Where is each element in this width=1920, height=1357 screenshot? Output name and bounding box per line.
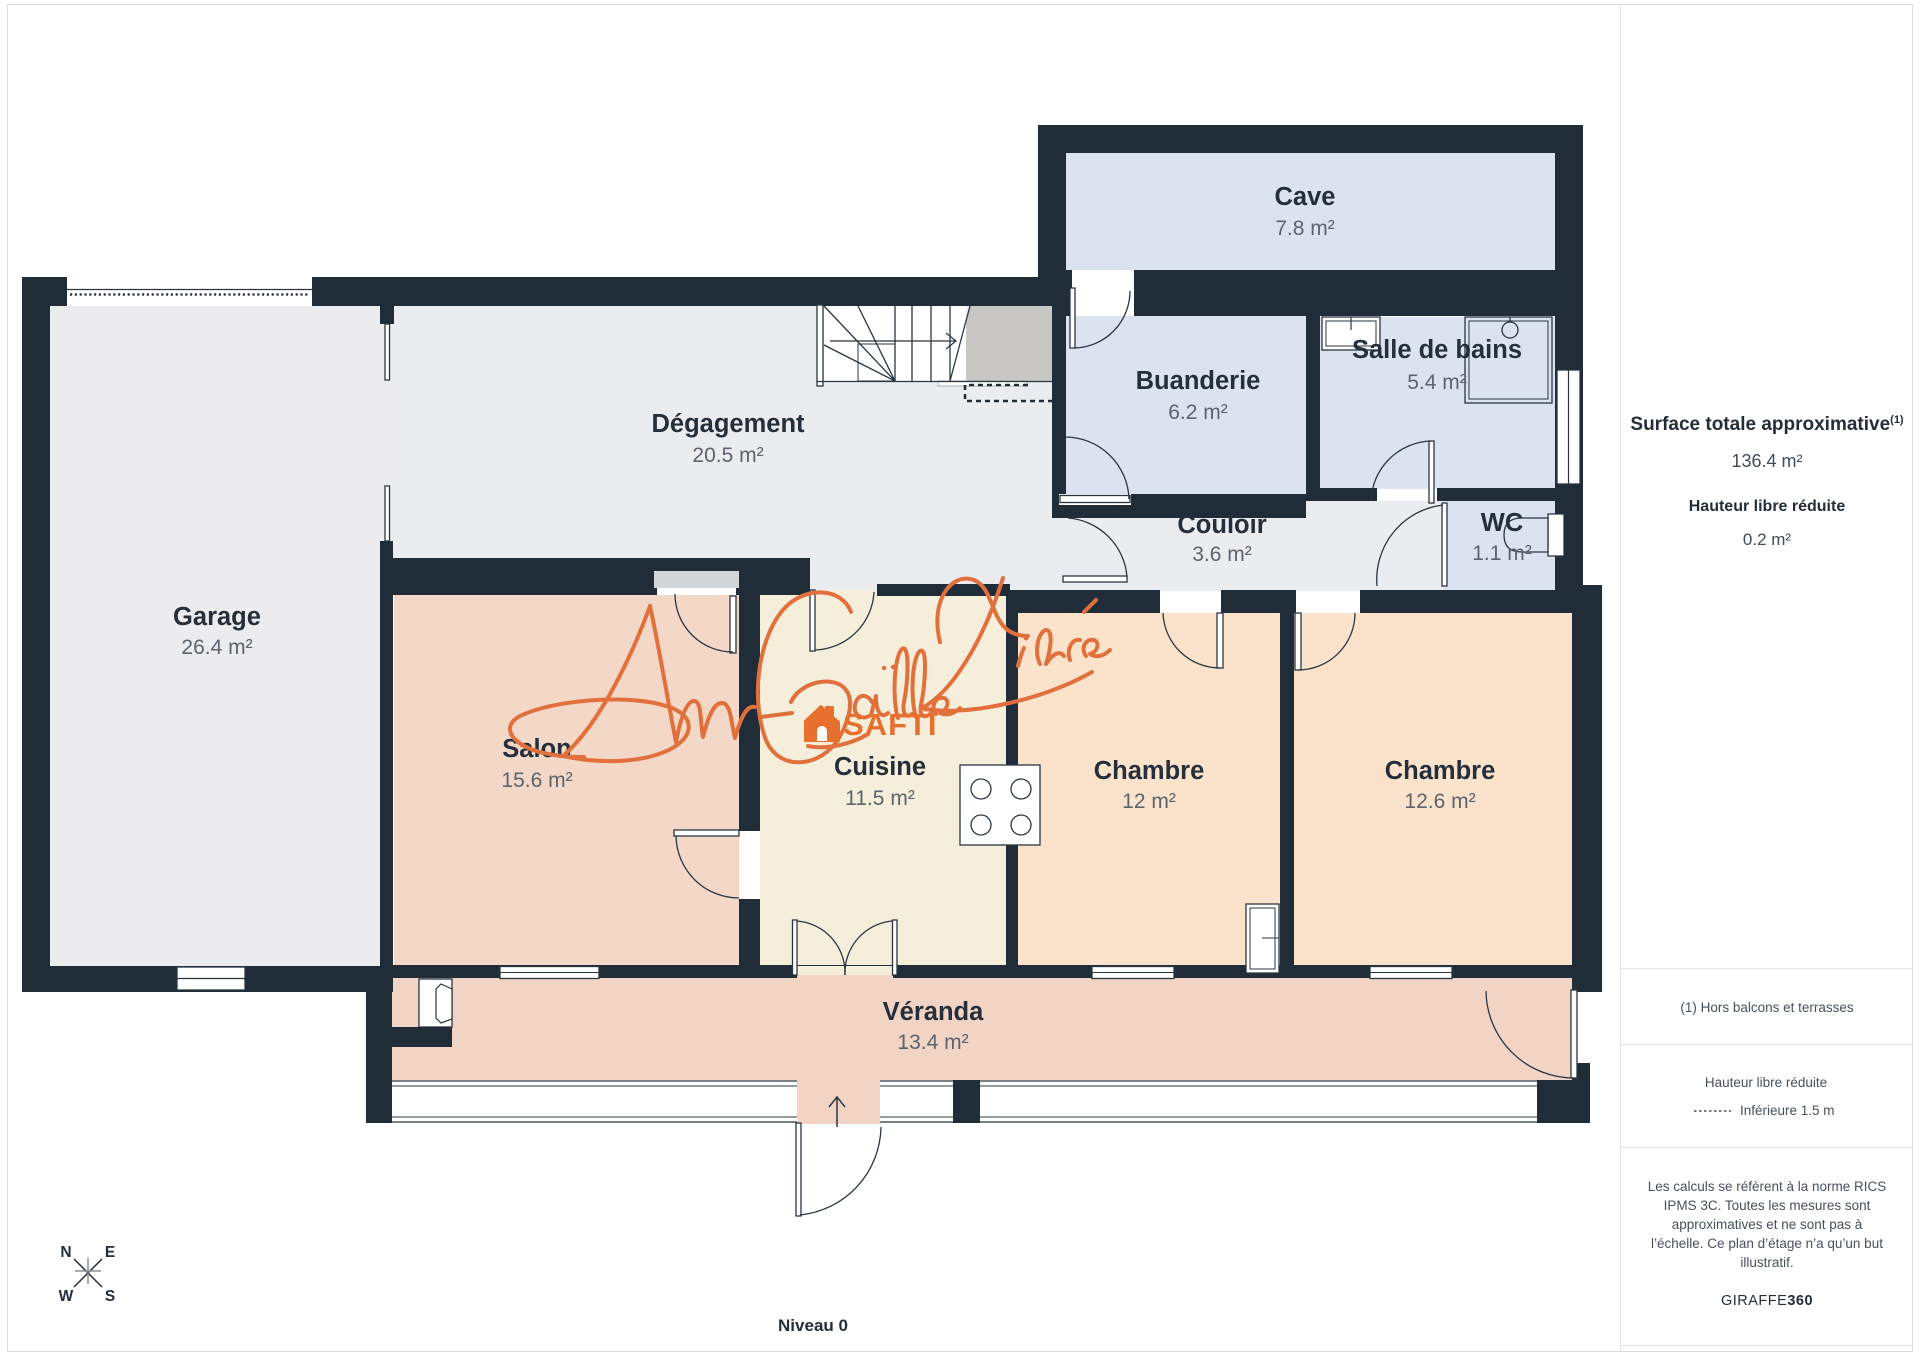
svg-text:Dégagement: Dégagement xyxy=(651,410,805,438)
svg-text:Cave: Cave xyxy=(1275,183,1336,211)
svg-text:Les calculs se réfèrent à la n: Les calculs se réfèrent à la norme RICS xyxy=(1648,1179,1887,1194)
svg-text:Véranda: Véranda xyxy=(883,998,984,1026)
svg-text:l’échelle. Ce plan d’étage n’a: l’échelle. Ce plan d’étage n’a qu’un but xyxy=(1651,1236,1883,1251)
svg-text:Buanderie: Buanderie xyxy=(1136,367,1261,395)
svg-text:7.8 m²: 7.8 m² xyxy=(1275,217,1335,240)
svg-text:S: S xyxy=(105,1288,115,1305)
svg-text:illustratif.: illustratif. xyxy=(1740,1255,1793,1270)
svg-text:3.6 m²: 3.6 m² xyxy=(1192,543,1252,566)
svg-text:12.6 m²: 12.6 m² xyxy=(1404,790,1475,813)
svg-text:Surface totale approximative(1: Surface totale approximative(1) xyxy=(1630,414,1904,435)
svg-text:WC: WC xyxy=(1481,509,1523,537)
svg-text:Cuisine: Cuisine xyxy=(834,753,926,781)
svg-text:SAFTI: SAFTI xyxy=(843,707,938,742)
svg-text:Inférieure 1.5 m: Inférieure 1.5 m xyxy=(1740,1103,1835,1118)
svg-text:26.4 m²: 26.4 m² xyxy=(181,636,252,659)
svg-text:approximatives et ne sont pas: approximatives et ne sont pas à xyxy=(1672,1217,1863,1232)
svg-text:Chambre: Chambre xyxy=(1385,757,1496,785)
svg-text:Niveau 0: Niveau 0 xyxy=(778,1316,848,1335)
svg-text:136.4 m²: 136.4 m² xyxy=(1731,451,1802,471)
svg-text:Hauteur libre réduite: Hauteur libre réduite xyxy=(1689,498,1846,515)
svg-text:IPMS 3C. Toutes les mesures so: IPMS 3C. Toutes les mesures sont xyxy=(1664,1198,1871,1213)
svg-text:Couloir: Couloir xyxy=(1177,511,1266,539)
svg-text:Salle de bains: Salle de bains xyxy=(1352,336,1522,364)
svg-text:15.6 m²: 15.6 m² xyxy=(501,769,572,792)
svg-text:13.4 m²: 13.4 m² xyxy=(897,1031,968,1054)
svg-text:11.5 m²: 11.5 m² xyxy=(845,787,915,810)
svg-text:Hauteur libre réduite: Hauteur libre réduite xyxy=(1705,1075,1827,1090)
svg-text:0.2 m²: 0.2 m² xyxy=(1743,530,1792,549)
svg-text:6.2 m²: 6.2 m² xyxy=(1168,401,1228,424)
svg-text:1.1 m²: 1.1 m² xyxy=(1472,542,1532,565)
svg-text:Chambre: Chambre xyxy=(1094,757,1205,785)
svg-text:5.4 m²: 5.4 m² xyxy=(1407,371,1467,394)
svg-text:W: W xyxy=(59,1288,74,1305)
svg-text:N: N xyxy=(60,1244,71,1261)
svg-text:20.5 m²: 20.5 m² xyxy=(692,444,763,467)
svg-text:(1) Hors balcons et terrasses: (1) Hors balcons et terrasses xyxy=(1680,1000,1854,1015)
svg-text:E: E xyxy=(105,1244,115,1261)
svg-text:12 m²: 12 m² xyxy=(1122,790,1176,813)
svg-text:Garage: Garage xyxy=(173,603,261,631)
svg-text:GIRAFFE360: GIRAFFE360 xyxy=(1721,1293,1813,1309)
